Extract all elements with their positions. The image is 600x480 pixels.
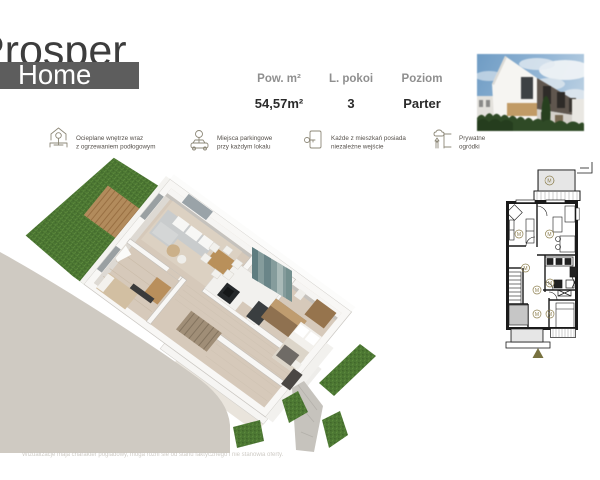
svg-text:M: M [548,312,552,318]
svg-text:M: M [547,232,551,238]
svg-text:M: M [548,281,552,287]
svg-text:Wizualizacje maja charakter po: Wizualizacje maja charakter pogladowy, m… [22,452,284,458]
svg-text:Miejsca parkingowe: Miejsca parkingowe [217,135,273,142]
svg-text:Prywatne: Prywatne [459,135,486,142]
svg-text:ogródki: ogródki [459,143,480,150]
svg-text:Ocieplane wnętrze wraz: Ocieplane wnętrze wraz [76,135,143,142]
svg-text:M: M [517,232,521,238]
svg-text:z ogrzewaniem podłogowym: z ogrzewaniem podłogowym [76,143,155,150]
svg-text:Każde z mieszkań posiada: Każde z mieszkań posiada [331,135,406,142]
svg-text:M: M [547,179,551,185]
svg-text:M: M [535,312,539,318]
svg-text:przy każdym lokalu: przy każdym lokalu [217,143,271,150]
svg-text:M: M [535,288,539,294]
svg-text:M: M [523,266,527,272]
svg-text:niezależne wejście: niezależne wejście [331,143,384,150]
